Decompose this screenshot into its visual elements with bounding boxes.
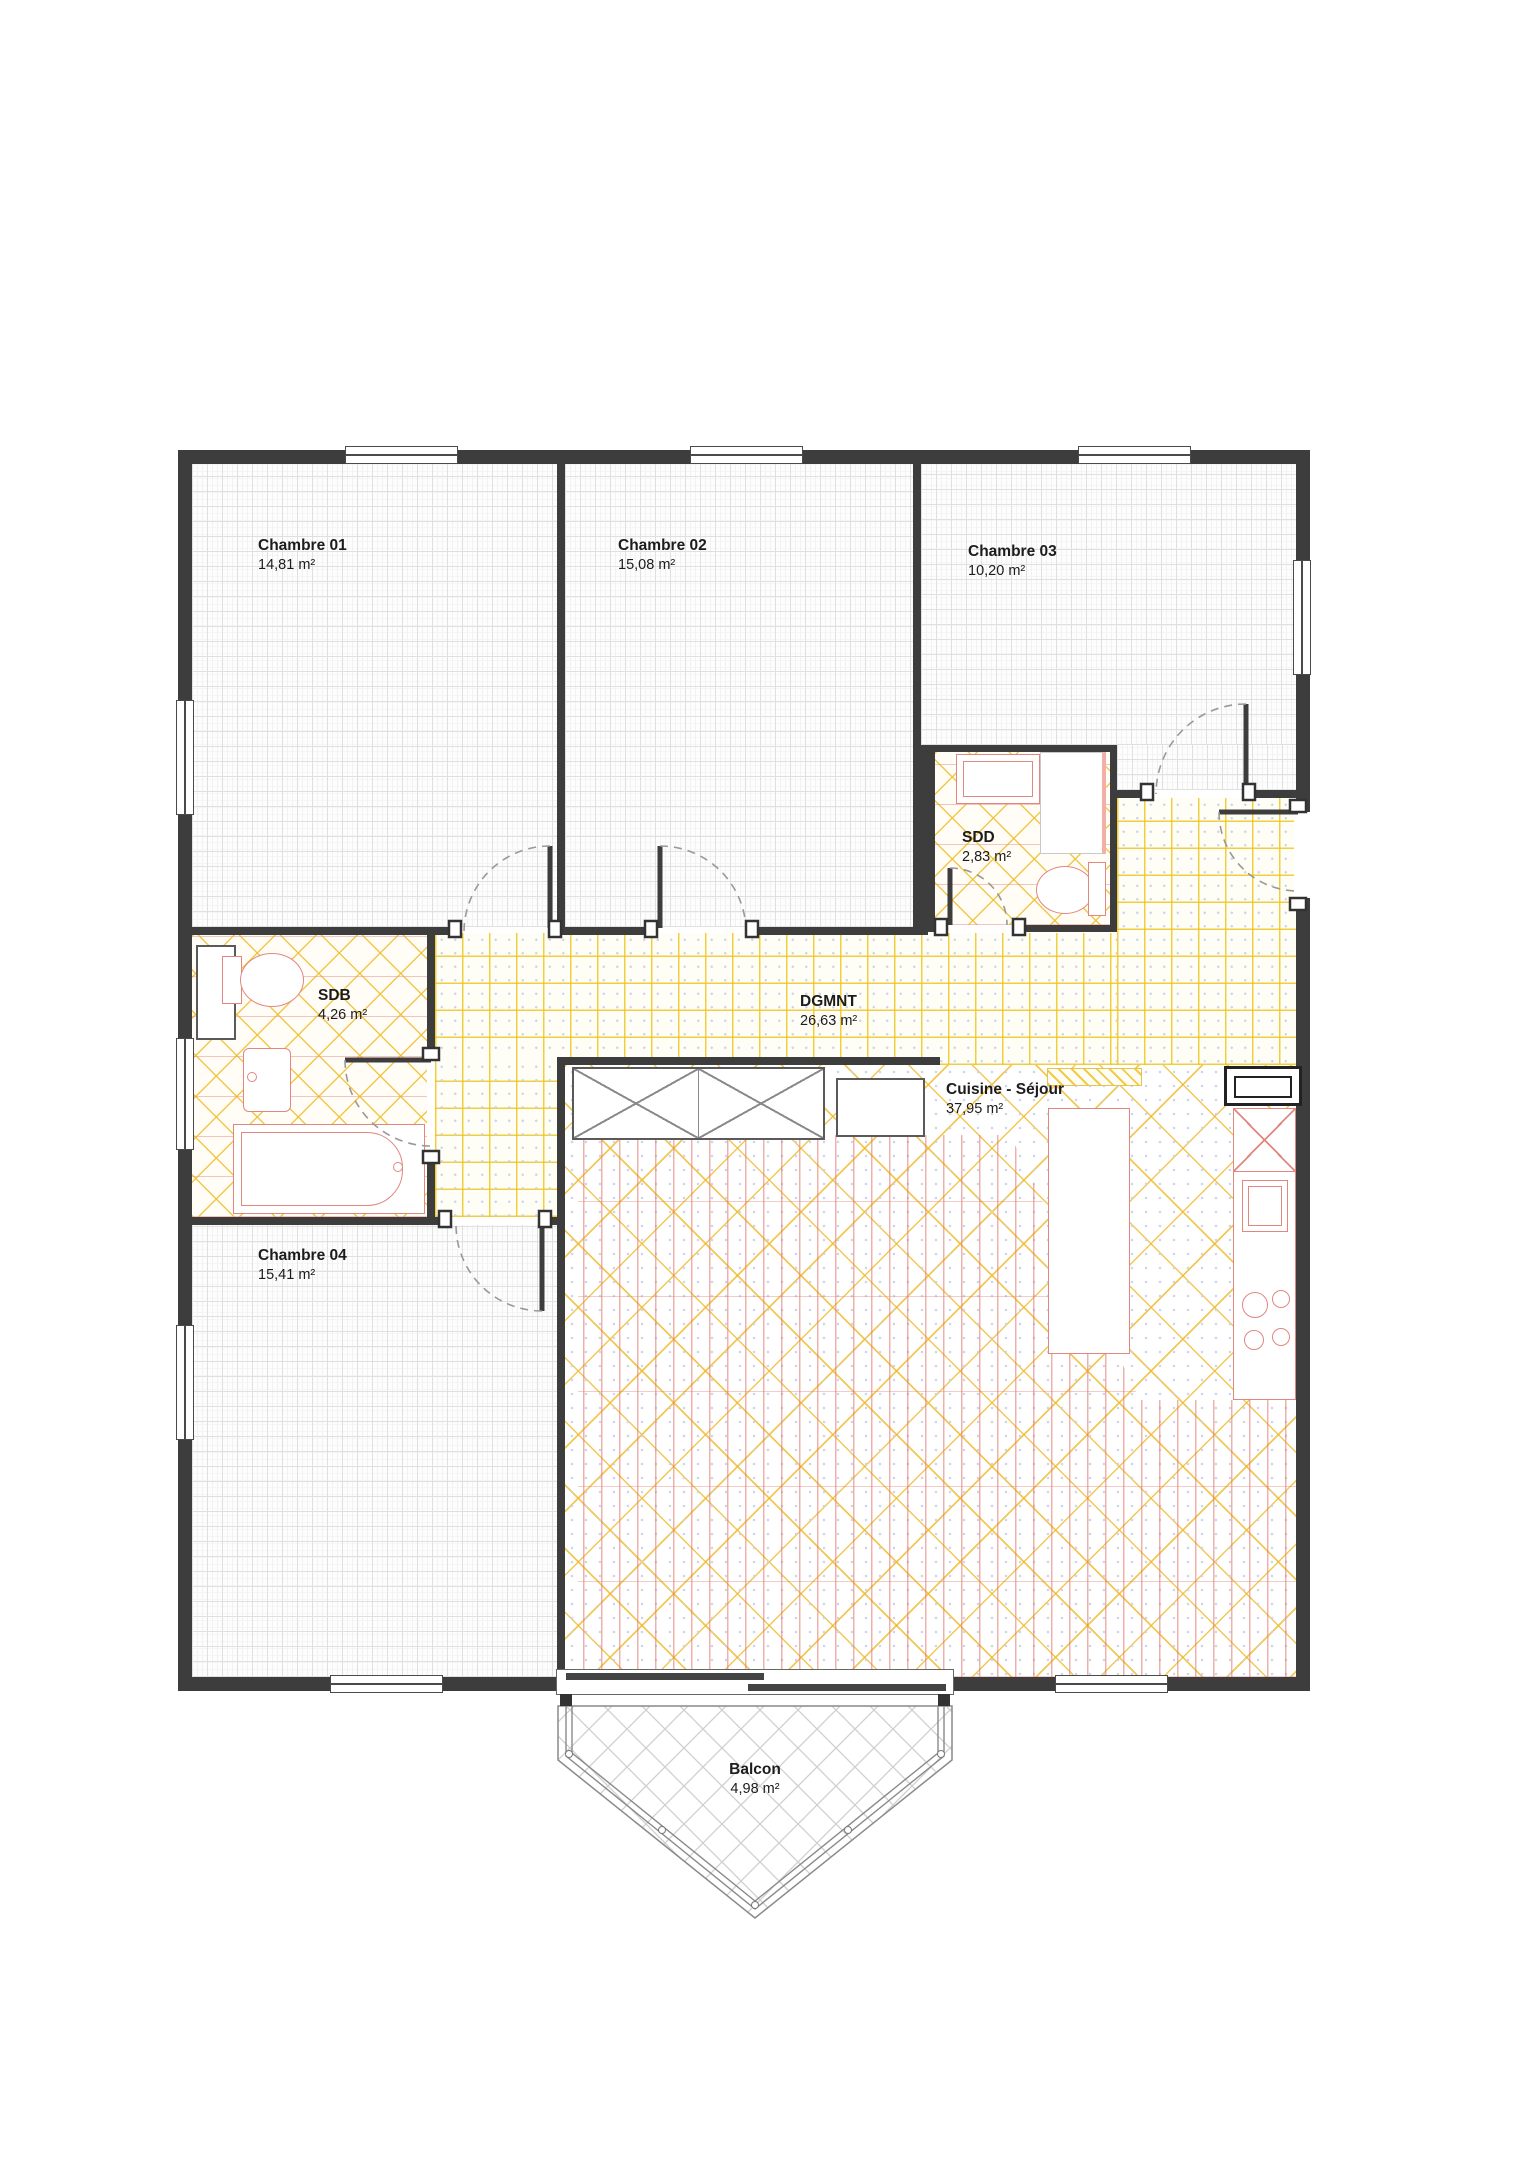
hall-cabinet bbox=[836, 1078, 925, 1137]
kitchen-sink bbox=[1233, 1108, 1296, 1172]
floor-chambre-03 bbox=[921, 464, 1296, 745]
room-name: Chambre 03 bbox=[968, 542, 1057, 562]
sdb-bathtub-drain bbox=[393, 1162, 403, 1172]
balcony-railing-outer bbox=[566, 1706, 944, 1909]
floor-hallway-main bbox=[435, 933, 1117, 1065]
room-name: DGMNT bbox=[800, 992, 857, 1012]
floor-chambre-04 bbox=[192, 1225, 557, 1677]
sdb-bathtub-inner bbox=[241, 1132, 403, 1206]
label-chambre-04: Chambre 04 15,41 m² bbox=[258, 1246, 347, 1285]
room-name: Chambre 01 bbox=[258, 536, 347, 556]
wall-sdd-bottom-b bbox=[1013, 925, 1117, 932]
room-area: 15,08 m² bbox=[618, 556, 707, 575]
wall-ch03-lower-a bbox=[1117, 790, 1153, 798]
sliding-door-panel-left bbox=[566, 1673, 764, 1680]
kitchen-island bbox=[1048, 1108, 1130, 1354]
window-chambre-02-top bbox=[690, 446, 803, 464]
room-name: SDD bbox=[962, 828, 1011, 848]
balcony bbox=[558, 1694, 952, 1918]
label-chambre-03: Chambre 03 10,20 m² bbox=[968, 542, 1057, 581]
window-chambre-03-right bbox=[1293, 560, 1311, 675]
wall-sdb-ch04-a bbox=[192, 1217, 451, 1225]
floor-chambre-03-lower bbox=[1117, 745, 1296, 790]
window-chambre-03-top bbox=[1078, 446, 1191, 464]
sdb-toilet-tank bbox=[222, 956, 242, 1004]
label-chambre-01: Chambre 01 14,81 m² bbox=[258, 536, 347, 575]
floor-chambre-02 bbox=[565, 464, 913, 927]
cooktop-burner-1 bbox=[1242, 1292, 1268, 1318]
wardrobe-panel-1 bbox=[574, 1069, 698, 1138]
room-area: 15,41 m² bbox=[258, 1266, 347, 1285]
room-name: Balcon bbox=[655, 1760, 855, 1780]
room-area: 14,81 m² bbox=[258, 556, 347, 575]
wall-sdb-right-b bbox=[427, 1151, 435, 1225]
window-chambre-01-left bbox=[176, 700, 194, 815]
window-chambre-01-top bbox=[345, 446, 458, 464]
label-balcon: Balcon 4,98 m² bbox=[655, 1760, 855, 1799]
wall-sdd-top bbox=[921, 745, 1117, 752]
window-chambre-04-bottom bbox=[330, 1675, 443, 1693]
room-name: Cuisine - Séjour bbox=[946, 1080, 1064, 1100]
floor-plan: Chambre 01 14,81 m² Chambre 02 15,08 m² … bbox=[0, 0, 1527, 2160]
sdb-toilet-bowl bbox=[240, 953, 304, 1007]
balcony-railing-inner bbox=[572, 1706, 938, 1901]
room-area: 2,83 m² bbox=[962, 848, 1011, 867]
sdb-sink-faucet bbox=[247, 1072, 257, 1082]
entrance-door-gap bbox=[1294, 812, 1312, 898]
window-sdb-left bbox=[176, 1038, 194, 1150]
room-area: 10,20 m² bbox=[968, 562, 1057, 581]
wall-sdd-right bbox=[1110, 745, 1117, 932]
wall-sdd-left bbox=[921, 745, 935, 932]
wall-sdb-right-a bbox=[427, 935, 435, 1060]
wall-ch03-lower-b bbox=[1243, 790, 1296, 798]
wall-corridor-c bbox=[746, 927, 928, 935]
sdd-toilet-bowl bbox=[1036, 866, 1094, 914]
room-name: Chambre 02 bbox=[618, 536, 707, 556]
floor-entrance bbox=[1117, 798, 1296, 1065]
sdd-shower bbox=[1040, 752, 1106, 854]
floor-hallway-branch bbox=[435, 1060, 557, 1217]
sliding-door-panel-right bbox=[748, 1684, 946, 1691]
wall-corridor-a bbox=[192, 927, 461, 935]
kitchen-oven-inner bbox=[1248, 1186, 1282, 1226]
balcony-post-left bbox=[560, 1694, 572, 1706]
window-sejour-bottom bbox=[1055, 1675, 1168, 1693]
wall-ch02-ch03 bbox=[913, 464, 921, 927]
wall-ch01-ch02 bbox=[557, 464, 565, 927]
room-name: SDB bbox=[318, 986, 367, 1006]
cooktop-burner-2 bbox=[1272, 1290, 1290, 1308]
label-cuisine-sejour: Cuisine - Séjour 37,95 m² bbox=[946, 1080, 1064, 1119]
label-dgmnt: DGMNT 26,63 m² bbox=[800, 992, 857, 1031]
label-sdd: SDD 2,83 m² bbox=[962, 828, 1011, 867]
sdd-toilet-tank bbox=[1088, 862, 1106, 916]
label-chambre-02: Chambre 02 15,08 m² bbox=[618, 536, 707, 575]
kitchen-fridge-inner bbox=[1234, 1076, 1292, 1098]
label-sdb: SDB 4,26 m² bbox=[318, 986, 367, 1025]
cooktop-burner-3 bbox=[1244, 1330, 1264, 1350]
wall-closet-top bbox=[557, 1057, 940, 1065]
room-area: 37,95 m² bbox=[946, 1100, 1064, 1119]
room-area: 4,26 m² bbox=[318, 1006, 367, 1025]
hall-wardrobe bbox=[572, 1067, 825, 1140]
room-area: 26,63 m² bbox=[800, 1012, 857, 1031]
balcony-post-right bbox=[938, 1694, 950, 1706]
wall-sdd-bottom-a bbox=[928, 925, 947, 932]
room-area: 4,98 m² bbox=[655, 1780, 855, 1799]
wall-corridor-b bbox=[549, 927, 657, 935]
room-name: Chambre 04 bbox=[258, 1246, 347, 1266]
floor-chambre-01 bbox=[192, 464, 557, 927]
wall-sejour-left bbox=[557, 1065, 565, 1677]
sdd-sink-inner bbox=[963, 761, 1033, 797]
wardrobe-panel-2 bbox=[698, 1069, 823, 1138]
balcony-deck bbox=[558, 1706, 952, 1918]
window-chambre-04-left bbox=[176, 1325, 194, 1440]
cooktop-burner-4 bbox=[1272, 1328, 1290, 1346]
